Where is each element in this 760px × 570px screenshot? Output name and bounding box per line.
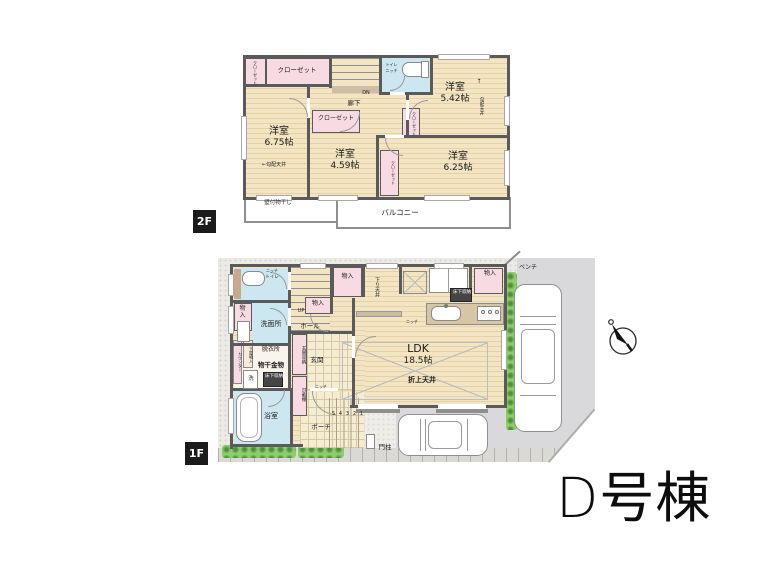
door-gap xyxy=(288,272,291,290)
step-number: 5 xyxy=(330,412,337,418)
skylight-box xyxy=(403,271,427,294)
storage-label: 物入 xyxy=(307,301,329,308)
floor-badge-1f: 1F xyxy=(185,442,208,465)
niche-label: ニッチ xyxy=(404,320,420,324)
niche-label: ニッチ xyxy=(312,385,330,389)
wall-laundry-label: 壁付物干し xyxy=(254,200,302,206)
ldk-name: LDK xyxy=(396,343,440,355)
window xyxy=(300,263,326,269)
underfloor-storage-wash: 床下収納 xyxy=(263,372,283,387)
toilet-label: トイレ xyxy=(262,275,282,280)
north-arrow-icon xyxy=(602,314,644,360)
window xyxy=(228,398,234,434)
closet-divider xyxy=(448,268,449,293)
washroom-label: 洗面所 xyxy=(252,321,290,329)
underfloor-label: 床下収納 xyxy=(265,374,283,379)
toilet-tank xyxy=(421,61,429,78)
washer-label: 洗 xyxy=(245,376,257,382)
closet-label: クローゼット xyxy=(314,116,358,123)
sloped-ceiling-label: ←勾配天井 xyxy=(250,163,298,169)
window xyxy=(228,274,234,296)
storage-a xyxy=(333,267,362,297)
window xyxy=(318,195,358,201)
closet-label: クローゼット xyxy=(405,112,416,136)
niche-label: ニッチ xyxy=(262,269,282,273)
bench-label: ベンチ xyxy=(514,265,542,272)
ldk-size: 18.5帖 xyxy=(396,356,440,366)
window xyxy=(504,96,510,126)
door-sill xyxy=(436,409,488,413)
hallway-label: 廊下 xyxy=(342,100,366,107)
underfloor-label: 床下収納 xyxy=(452,290,472,295)
toilet-nook xyxy=(234,269,241,299)
wall xyxy=(379,55,382,95)
room-size: 6.25帖 xyxy=(436,163,480,173)
wall xyxy=(362,264,365,297)
storage-label: 物入 xyxy=(335,274,360,281)
window xyxy=(434,263,464,269)
bathroom-label: 浴室 xyxy=(256,413,286,421)
laundry-hw-label: 物干金物 xyxy=(252,362,290,369)
floor-badge-2f-label: 2F xyxy=(197,215,212,228)
dn-label: DN xyxy=(358,91,374,97)
floor-badge-2f: 2F xyxy=(193,210,216,233)
step-number: 2 xyxy=(351,412,358,418)
wall xyxy=(330,264,333,314)
counter-label: カウンター xyxy=(233,342,242,382)
window xyxy=(504,150,510,186)
burner xyxy=(495,310,499,314)
car-vertical xyxy=(514,284,562,432)
porch-label: ポーチ xyxy=(306,424,336,431)
window xyxy=(241,116,247,160)
staircase-2f xyxy=(332,58,380,88)
up-label: UP xyxy=(293,309,309,315)
burner xyxy=(488,310,492,314)
wall xyxy=(265,58,267,86)
washbasin xyxy=(237,321,250,342)
burner xyxy=(481,310,485,314)
island-counter xyxy=(356,311,402,317)
entrance-label: 玄関 xyxy=(303,357,331,364)
floor-badge-1f-label: 1F xyxy=(189,447,204,460)
building-title: D号棟 xyxy=(556,468,756,530)
dressing-label: 脱衣所 xyxy=(254,347,288,354)
wall xyxy=(232,300,290,303)
room-name: 洋室 xyxy=(257,126,301,137)
step-number: 1 xyxy=(358,412,365,418)
room-size: 6.75帖 xyxy=(257,138,301,148)
faucet xyxy=(444,304,448,308)
closet-label: クローゼット xyxy=(268,67,326,74)
car-horizontal xyxy=(398,414,488,456)
floor-plan-canvas: クローゼット クローゼット 廊下 DN トイレ ニッチ 洋室 5.42帖 ↑ 勾… xyxy=(0,0,760,570)
gate-post-label: 門柱 xyxy=(374,444,396,451)
door-gap xyxy=(390,92,405,95)
movable-shelf-label: 可動棚 xyxy=(293,378,306,412)
storage-label: 物入 xyxy=(238,306,247,319)
closet-label: クローゼット xyxy=(247,61,257,85)
room-name: 洋室 xyxy=(433,82,477,93)
underfloor-storage-kitchen: 床下収納 xyxy=(450,288,472,302)
room-name: 洋室 xyxy=(436,151,480,162)
geya-storage-label: 下屋物入 xyxy=(243,342,253,368)
niche-label: ニッチ xyxy=(383,69,400,73)
wall xyxy=(329,55,332,88)
wall xyxy=(352,298,355,331)
window xyxy=(424,195,470,201)
step-number: 3 xyxy=(344,412,351,418)
balcony-label: バルコニー xyxy=(372,209,428,217)
raised-ceiling-label: 折上天井 xyxy=(398,377,446,385)
arrow-up: ↑ xyxy=(474,79,484,86)
toilet-label: トイレ xyxy=(383,63,400,67)
room-name: 洋室 xyxy=(323,149,367,160)
window xyxy=(438,54,490,60)
closet-label: クローゼット xyxy=(384,155,395,191)
storage-label: 物入 xyxy=(478,271,502,278)
wall xyxy=(288,331,354,334)
window xyxy=(228,306,234,334)
kitchen-sink xyxy=(431,306,461,321)
lowered-ceiling-label: 下り天井 xyxy=(368,269,379,305)
wall xyxy=(376,135,379,198)
step-number: 4 xyxy=(337,412,344,418)
room-size: 5.42帖 xyxy=(433,94,477,104)
window xyxy=(501,330,507,370)
entrance-storage-label: 玄関収納 xyxy=(293,337,306,373)
sloped-ceiling-label: 勾配天井 xyxy=(474,88,484,124)
hall-label: ホール xyxy=(294,323,326,330)
room-size: 4.59帖 xyxy=(323,161,367,171)
wall xyxy=(399,264,402,294)
